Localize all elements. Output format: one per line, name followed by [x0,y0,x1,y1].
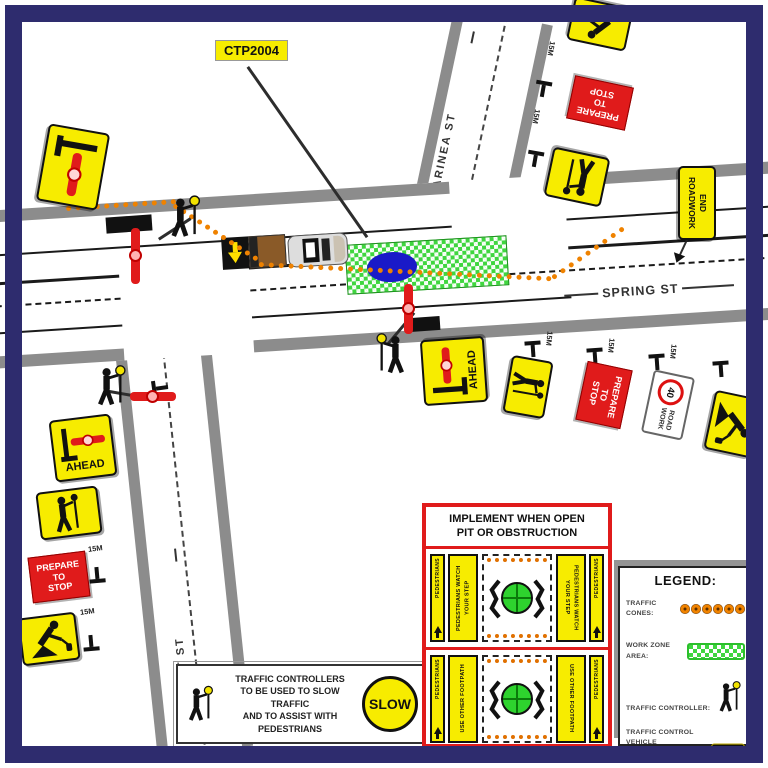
bat-circle [402,302,415,315]
car-hood [333,235,346,262]
controller-symbol-sign-partial [36,123,111,211]
legend-row-cones: TRAFFIC CONES: [626,599,745,619]
note-line: TO BE USED TO SLOW TRAFFIC [224,685,356,710]
label-dash [174,549,177,562]
roadwork-text: ROAD WORK [654,407,675,432]
distance-marker: 15M [606,338,616,353]
lane-line [566,205,768,220]
open-pit-icon [501,582,533,614]
legend-row-workzone: WORK ZONE AREA: [626,641,745,661]
barrier-icon [533,680,546,720]
use-other-footpath-sign: USE OTHER FOOTPATH [556,655,586,743]
up-arrow-icon [434,626,442,638]
digger-icon [574,1,627,48]
legend-label-line: AREA: [626,653,649,660]
pedestrians-sign: PEDESTRIANS [589,554,604,642]
road-curb [253,307,768,353]
speed-limit-roundel: 40 [655,377,686,408]
prepare-to-stop-sign: PREPARE TO STOP [27,551,90,604]
traffic-cone-line [487,558,547,562]
lane-line [0,275,119,286]
pedestrians-sign: PEDESTRIANS [430,554,445,642]
roadwork-sign [17,612,80,667]
speed-roadwork-sign: 40 ROAD WORK [641,369,695,440]
implement-box: IMPLEMENT WHEN OPEN PIT OR OBSTRUCTION P… [422,503,612,748]
legend-label: TRAFFIC CONTROLLER: [626,704,710,714]
controller-note-text: TRAFFIC CONTROLLERS TO BE USED TO SLOW T… [224,673,356,736]
ctp-plan-label: CTP2004 [215,40,288,61]
prepare-to-stop-sign: PREPARE TO STOP [575,361,632,429]
stop-bat-icon [404,284,413,334]
worker-icon [553,151,601,202]
legend-row-vehicle: TRAFFIC CONTROL VEHICLE w ARROW BOARD [626,728,745,759]
pit-enclosure-diagram [482,554,552,642]
implement-title-line: IMPLEMENT WHEN OPEN [428,512,606,526]
traffic-cone-line [487,634,547,638]
bat-circle [146,390,159,403]
controller-ahead-sign: AHEAD [420,336,488,406]
traffic-cone-line [487,735,547,739]
barrier-icon [488,579,501,619]
roadwork-sign [703,390,762,459]
watch-your-step-sign: PEDESTRIANS WATCH YOUR STEP [448,554,478,642]
traffic-controller-icon [717,680,745,714]
stop-bat-icon [131,228,140,284]
traffic-controller-figure [168,194,206,240]
digger-icon [23,615,76,663]
sign-text: STOP [48,581,73,594]
distance-marker: 15M [531,109,542,125]
legend-label: TRAFFIC CONES: [626,599,680,619]
label-dash [682,284,734,289]
street-label-text: SPRING ST [602,282,679,301]
barrier-icon [488,680,501,720]
work-zone-icon [687,643,745,660]
sign-text: AHEAD [466,350,480,390]
traffic-controller-figure [370,332,408,376]
distance-marker: 15M [88,543,104,554]
control-vehicle-icon [711,741,745,758]
traffic-cone-line [487,659,547,663]
sign-text: PEDESTRIANS WATCH YOUR STEP [563,559,580,637]
up-arrow-icon [434,727,442,739]
sign-text: USE OTHER FOOTPATH [567,664,575,732]
open-pit-icon [501,683,533,715]
legend-label-line: WORK ZONE [626,642,670,649]
sign-text: END [697,194,708,212]
label-dash [564,293,598,297]
sign-base [105,214,152,233]
stop-bat-icon [130,392,176,401]
distance-marker: 15M [544,331,554,346]
worker-icon [506,366,550,408]
sign-post-marker [88,564,106,583]
legend-label-line: w ARROW BOARD [626,748,711,758]
sign-text: PEDESTRIANS WATCH YOUR STEP [455,559,472,637]
implement-title: IMPLEMENT WHEN OPEN PIT OR OBSTRUCTION [426,507,608,549]
work-vehicle [287,232,349,268]
note-line: TRAFFIC CONTROLLERS [224,673,356,686]
lane-line [0,325,122,335]
traffic-control-plan: MARINEA ST SHORT ST SPRING ST [0,0,768,768]
label-dash [470,31,474,43]
sign-text: ROADWORK [686,177,697,229]
sign-base [410,316,441,332]
sign-post-marker [82,632,100,651]
worker-symbol-sign [35,485,102,540]
up-arrow-icon [593,626,601,638]
implement-title-line: PIT OR OBSTRUCTION [428,526,606,540]
worker-icon [47,490,92,537]
note-line: AND TO ASSIST WITH PEDESTRIANS [224,710,356,735]
legend-row-controller: TRAFFIC CONTROLLER: [626,680,745,714]
pedestrian-diagram-row: PEDESTRIANS PEDESTRIANS WATCH YOUR STEP … [426,549,608,647]
legend-label: WORK ZONE AREA: [626,641,670,661]
sign-post-marker [712,360,729,379]
sign-text: STOP [589,85,615,100]
traffic-cones-icon [680,604,745,614]
stop-bat-symbol-icon [428,344,470,399]
watch-your-step-sign: PEDESTRIANS WATCH YOUR STEP [556,554,586,642]
pedestrian-diagram-row: PEDESTRIANS USE OTHER FOOTPATH USE OTHER… [426,650,608,748]
controller-note-box: TRAFFIC CONTROLLERS TO BE USED TO SLOW T… [176,664,428,744]
slow-text: SLOW [369,696,411,712]
street-label-spring: SPRING ST [564,278,735,303]
speed-value: 40 [664,386,677,399]
up-arrow-icon [593,727,601,739]
car-roof [306,242,316,258]
sign-post-marker [526,150,545,171]
ctp-label-text: CTP2004 [224,43,279,58]
pit-enclosure-diagram [482,655,552,743]
prepare-to-stop-sign: PREPARE TO STOP [566,75,634,131]
digger-icon [707,396,758,452]
sign-text: USE OTHER FOOTPATH [459,664,467,732]
sign-text: PEDESTRIANS [594,558,600,598]
pedestrians-sign: PEDESTRIANS [589,655,604,743]
legend-label-line: TRAFFIC CONTROL VEHICLE [626,729,693,746]
end-roadwork-sign: END ROADWORK [678,166,716,240]
use-other-footpath-sign: USE OTHER FOOTPATH [448,655,478,743]
controller-ahead-sign: AHEAD [48,413,117,482]
pedestrians-sign: PEDESTRIANS [430,655,445,743]
sign-text: PEDESTRIANS [435,659,441,699]
stop-bat-symbol-icon [45,132,101,201]
work-zone-area [345,235,510,295]
traffic-controller-icon [186,682,218,726]
bat-circle [129,249,142,262]
slow-bat-sign: SLOW [362,676,418,732]
roadwork-sign-partial [566,0,634,52]
legend-title: LEGEND: [626,573,745,588]
lane-dash-line [0,298,121,308]
sign-text: PEDESTRIANS [435,558,441,598]
car-rear-window [321,238,330,260]
worker-symbol-sign [502,355,553,419]
down-arrow-icon [228,252,243,264]
distance-marker: 15M [668,344,678,359]
sign-text: PEDESTRIANS [594,659,600,699]
distance-marker: 15M [80,606,96,617]
distance-marker: 15M [546,41,557,57]
sign-post-marker [534,80,553,101]
legend-box: LEGEND: TRAFFIC CONES: WORK ZONE AREA: T… [618,566,753,746]
barrier-icon [533,579,546,619]
traffic-controller-figure [94,364,132,408]
legend-label: TRAFFIC CONTROL VEHICLE w ARROW BOARD [626,728,711,759]
